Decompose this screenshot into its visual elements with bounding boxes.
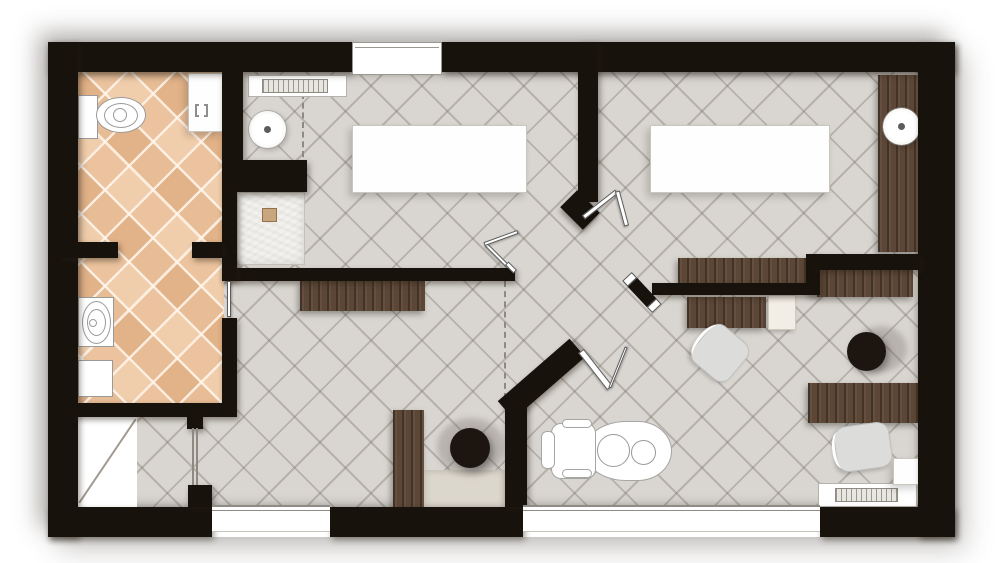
wall-south-vertical [505,400,527,507]
wall-right [918,42,955,537]
room2-table [650,125,830,193]
wall-bathroom-east-mid [222,258,237,280]
office-stool [847,332,886,371]
wall-shower-north [222,160,307,192]
dental-chair-armrest-bottom [562,469,592,478]
shower-drain [262,208,277,222]
dental-chair-armrest-top [562,419,592,428]
wall-left [48,42,78,537]
room2-wall-desk [678,258,808,283]
bathroom-cabinet-top [188,73,223,132]
window-bottom-left [212,505,330,532]
bathroom-cabinet-bottom [78,360,113,397]
floor-plan [0,0,1000,563]
office-chair-2 [832,420,894,473]
window-bottom-center [523,505,820,532]
toilet-flush [113,108,127,122]
corridor-console [300,281,425,311]
wall-bottom-1 [48,507,212,537]
office-upper-desk [817,268,913,297]
glass-door-storage [192,428,198,485]
bathroom-sink-faucet [89,319,97,327]
wall-room2-south [652,283,812,295]
office-drawer-unit [687,297,766,328]
dental-chair-seat-circle [597,434,630,467]
right-wall-counter [878,75,918,252]
wall-bathroom-east-low [222,318,237,403]
wall-office-north [817,254,920,270]
room1-radiator-core [262,79,328,93]
bathroom-cabinet-symbol [195,104,208,117]
room2-sink-drain-dot [898,123,905,130]
office-lower-desk [808,383,918,423]
toilet-tank [78,95,98,139]
corridor-stool [450,428,490,468]
shower-tray [237,192,305,265]
bathroom-sliding-leaf [227,281,231,317]
room1-table [352,125,527,193]
wall-bathroom-east-upper [222,72,243,160]
wall-room1-south [222,268,515,281]
dental-chair-foot-circle [631,440,656,465]
wall-top-right [442,42,955,72]
dental-chair-headrest [541,431,555,469]
room1-sink-drain-dot [264,126,271,133]
wall-top-left [48,42,352,72]
wall-bathroom-south [73,403,237,417]
wall-bathroom-stub-right [192,242,223,258]
wall-shower-west [222,192,237,268]
wall-bathroom-stub-left [60,242,118,258]
dashed-line-corridor [504,281,506,399]
wall-partition-room1-room2 [578,42,598,202]
wall-glass-door-stub [188,485,212,507]
office-corner-table [893,458,920,485]
office-radiator-core [835,488,898,502]
dashed-line-room1 [302,93,304,157]
wall-bottom-2 [330,507,523,537]
window-top [352,42,442,75]
wall-bottom-3 [820,507,955,537]
corridor-tall-cabinet [393,410,424,507]
office-printer [768,295,796,330]
